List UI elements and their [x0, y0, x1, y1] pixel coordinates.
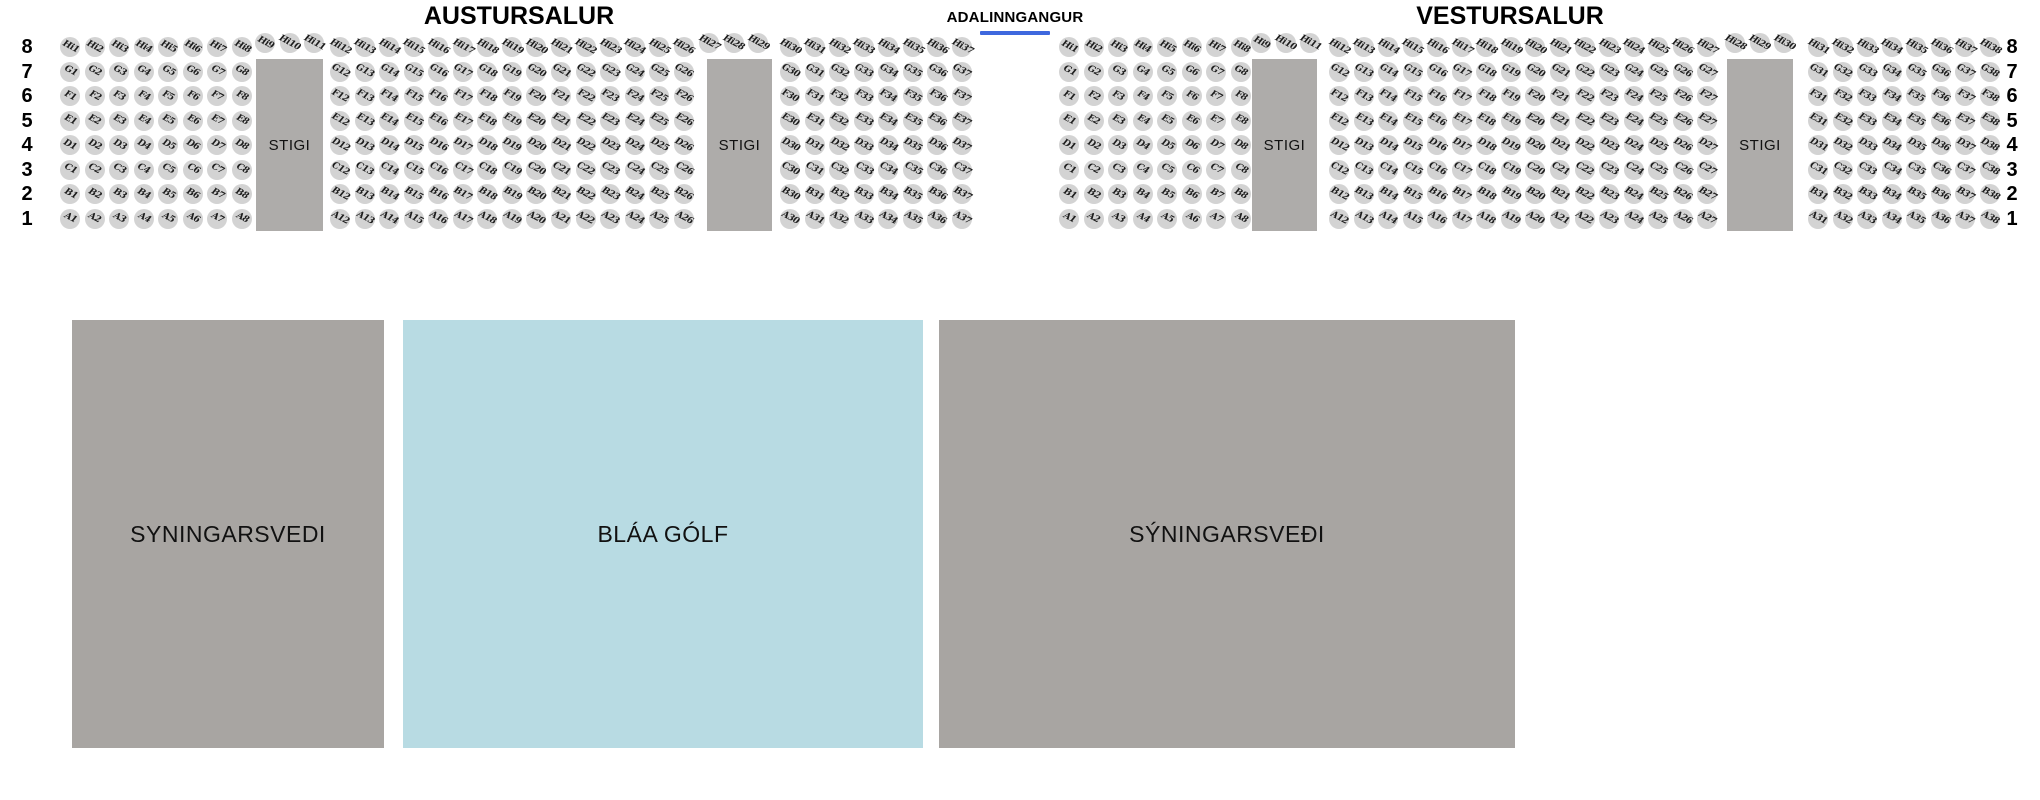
seat-C22[interactable]: C22: [1575, 160, 1595, 180]
seat-G23[interactable]: G23: [1599, 62, 1619, 82]
seat-C1[interactable]: C1: [1059, 160, 1079, 180]
seat-E2[interactable]: E2: [85, 111, 105, 131]
seat-B5[interactable]: B5: [158, 184, 178, 204]
seat-F1[interactable]: F1: [60, 86, 80, 106]
seat-G3[interactable]: G3: [109, 62, 129, 82]
seat-G14[interactable]: G14: [1378, 62, 1398, 82]
seat-F6[interactable]: F6: [1182, 86, 1202, 106]
seat-C16[interactable]: C16: [428, 160, 448, 180]
seat-A36[interactable]: A36: [1931, 209, 1951, 229]
seat-Hi20[interactable]: Hi20: [526, 37, 546, 57]
seat-G34[interactable]: G34: [1882, 62, 1902, 82]
seat-A34[interactable]: A34: [878, 209, 898, 229]
seat-Hi15[interactable]: Hi15: [404, 37, 424, 57]
seat-C30[interactable]: C30: [780, 160, 800, 180]
seat-Hi9[interactable]: Hi9: [1251, 33, 1271, 53]
seat-C31[interactable]: C31: [1808, 160, 1828, 180]
seat-F2[interactable]: F2: [1084, 86, 1104, 106]
seat-D26[interactable]: D26: [674, 135, 694, 155]
seat-C22[interactable]: C22: [576, 160, 596, 180]
seat-F13[interactable]: F13: [1354, 86, 1374, 106]
seat-C21[interactable]: C21: [1550, 160, 1570, 180]
seat-Hi3[interactable]: Hi3: [109, 37, 129, 57]
seat-D3[interactable]: D3: [1108, 135, 1128, 155]
seat-E32[interactable]: E32: [829, 111, 849, 131]
seat-B34[interactable]: B34: [878, 184, 898, 204]
seat-B32[interactable]: B32: [1833, 184, 1853, 204]
seat-G17[interactable]: G17: [453, 62, 473, 82]
seat-C20[interactable]: C20: [1525, 160, 1545, 180]
seat-C31[interactable]: C31: [805, 160, 825, 180]
seat-G33[interactable]: G33: [854, 62, 874, 82]
seat-A6[interactable]: A6: [1182, 209, 1202, 229]
seat-F21[interactable]: F21: [1550, 86, 1570, 106]
seat-B27[interactable]: B27: [1697, 184, 1717, 204]
seat-A31[interactable]: A31: [1808, 209, 1828, 229]
seat-D6[interactable]: D6: [1182, 135, 1202, 155]
seat-D8[interactable]: D8: [232, 135, 252, 155]
seat-F37[interactable]: F37: [1955, 86, 1975, 106]
seat-F24[interactable]: F24: [625, 86, 645, 106]
seat-D15[interactable]: D15: [404, 135, 424, 155]
seat-Hi8[interactable]: Hi8: [1231, 37, 1251, 57]
seat-A21[interactable]: A21: [1550, 209, 1570, 229]
seat-Hi21[interactable]: Hi21: [1550, 37, 1570, 57]
seat-G32[interactable]: G32: [829, 62, 849, 82]
seat-Hi37[interactable]: Hi37: [952, 37, 972, 57]
seat-Hi30[interactable]: Hi30: [1774, 33, 1794, 53]
seat-G31[interactable]: G31: [1808, 62, 1828, 82]
seat-E1[interactable]: E1: [1059, 111, 1079, 131]
seat-B17[interactable]: B17: [453, 184, 473, 204]
seat-E15[interactable]: E15: [1403, 111, 1423, 131]
seat-G20[interactable]: G20: [1525, 62, 1545, 82]
seat-A36[interactable]: A36: [927, 209, 947, 229]
seat-Hi27[interactable]: Hi27: [1697, 37, 1717, 57]
seat-A35[interactable]: A35: [1906, 209, 1926, 229]
seat-C24[interactable]: C24: [625, 160, 645, 180]
seat-C15[interactable]: C15: [404, 160, 424, 180]
seat-F14[interactable]: F14: [1378, 86, 1398, 106]
seat-D13[interactable]: D13: [355, 135, 375, 155]
seat-C17[interactable]: C17: [1452, 160, 1472, 180]
seat-D1[interactable]: D1: [60, 135, 80, 155]
seat-E13[interactable]: E13: [1354, 111, 1374, 131]
seat-D6[interactable]: D6: [183, 135, 203, 155]
seat-G6[interactable]: G6: [1182, 62, 1202, 82]
seat-D35[interactable]: D35: [1906, 135, 1926, 155]
seat-D19[interactable]: D19: [502, 135, 522, 155]
seat-F3[interactable]: F3: [109, 86, 129, 106]
seat-E5[interactable]: E5: [1157, 111, 1177, 131]
seat-Hi21[interactable]: Hi21: [551, 37, 571, 57]
seat-C27[interactable]: C27: [1697, 160, 1717, 180]
seat-F17[interactable]: F17: [453, 86, 473, 106]
seat-G38[interactable]: G38: [1980, 62, 2000, 82]
seat-E6[interactable]: E6: [1182, 111, 1202, 131]
seat-G36[interactable]: G36: [1931, 62, 1951, 82]
seat-F36[interactable]: F36: [1931, 86, 1951, 106]
seat-A32[interactable]: A32: [1833, 209, 1853, 229]
seat-Hi5[interactable]: Hi5: [1157, 37, 1177, 57]
seat-A17[interactable]: A17: [453, 209, 473, 229]
seat-C36[interactable]: C36: [927, 160, 947, 180]
seat-B36[interactable]: B36: [1931, 184, 1951, 204]
seat-D18[interactable]: D18: [477, 135, 497, 155]
seat-C36[interactable]: C36: [1931, 160, 1951, 180]
seat-G4[interactable]: G4: [1133, 62, 1153, 82]
seat-B38[interactable]: B38: [1980, 184, 2000, 204]
seat-F17[interactable]: F17: [1452, 86, 1472, 106]
seat-F16[interactable]: F16: [428, 86, 448, 106]
seat-F34[interactable]: F34: [878, 86, 898, 106]
seat-A5[interactable]: A5: [158, 209, 178, 229]
seat-D12[interactable]: D12: [330, 135, 350, 155]
seat-D24[interactable]: D24: [1624, 135, 1644, 155]
seat-A37[interactable]: A37: [952, 209, 972, 229]
seat-A14[interactable]: A14: [1378, 209, 1398, 229]
seat-D12[interactable]: D12: [1329, 135, 1349, 155]
seat-D31[interactable]: D31: [805, 135, 825, 155]
seat-G26[interactable]: G26: [674, 62, 694, 82]
seat-D27[interactable]: D27: [1697, 135, 1717, 155]
seat-F34[interactable]: F34: [1882, 86, 1902, 106]
seat-Hi7[interactable]: Hi7: [207, 37, 227, 57]
seat-E34[interactable]: E34: [878, 111, 898, 131]
seat-E22[interactable]: E22: [576, 111, 596, 131]
seat-B23[interactable]: B23: [1599, 184, 1619, 204]
seat-F14[interactable]: F14: [379, 86, 399, 106]
seat-C5[interactable]: C5: [158, 160, 178, 180]
seat-G16[interactable]: G16: [1427, 62, 1447, 82]
seat-D13[interactable]: D13: [1354, 135, 1374, 155]
seat-B25[interactable]: B25: [1648, 184, 1668, 204]
seat-C32[interactable]: C32: [1833, 160, 1853, 180]
seat-G2[interactable]: G2: [1084, 62, 1104, 82]
seat-Hi26[interactable]: Hi26: [1673, 37, 1693, 57]
seat-Hi35[interactable]: Hi35: [1906, 37, 1926, 57]
seat-Hi19[interactable]: Hi19: [502, 37, 522, 57]
seat-E23[interactable]: E23: [600, 111, 620, 131]
seat-Hi32[interactable]: Hi32: [829, 37, 849, 57]
seat-A25[interactable]: A25: [649, 209, 669, 229]
seat-G8[interactable]: G8: [1231, 62, 1251, 82]
seat-E25[interactable]: E25: [1648, 111, 1668, 131]
seat-E13[interactable]: E13: [355, 111, 375, 131]
area-blaa-golf[interactable]: BLÁA GÓLF: [403, 320, 923, 748]
seat-Hi22[interactable]: Hi22: [1575, 37, 1595, 57]
seat-Hi19[interactable]: Hi19: [1501, 37, 1521, 57]
seat-E21[interactable]: E21: [551, 111, 571, 131]
seat-G37[interactable]: G37: [1955, 62, 1975, 82]
seat-F30[interactable]: F30: [780, 86, 800, 106]
seat-D3[interactable]: D3: [109, 135, 129, 155]
seat-G18[interactable]: G18: [1476, 62, 1496, 82]
seat-A7[interactable]: A7: [207, 209, 227, 229]
seat-F18[interactable]: F18: [477, 86, 497, 106]
seat-B37[interactable]: B37: [952, 184, 972, 204]
seat-D32[interactable]: D32: [1833, 135, 1853, 155]
seat-A4[interactable]: A4: [134, 209, 154, 229]
seat-B36[interactable]: B36: [927, 184, 947, 204]
seat-E26[interactable]: E26: [1673, 111, 1693, 131]
seat-D32[interactable]: D32: [829, 135, 849, 155]
seat-E19[interactable]: E19: [502, 111, 522, 131]
seat-D1[interactable]: D1: [1059, 135, 1079, 155]
seat-A13[interactable]: A13: [355, 209, 375, 229]
seat-D17[interactable]: D17: [453, 135, 473, 155]
seat-D25[interactable]: D25: [1648, 135, 1668, 155]
seat-Hi17[interactable]: Hi17: [1452, 37, 1472, 57]
seat-B2[interactable]: B2: [1084, 184, 1104, 204]
seat-C16[interactable]: C16: [1427, 160, 1447, 180]
seat-D4[interactable]: D4: [1133, 135, 1153, 155]
seat-A8[interactable]: A8: [232, 209, 252, 229]
seat-C13[interactable]: C13: [355, 160, 375, 180]
seat-Hi17[interactable]: Hi17: [453, 37, 473, 57]
seat-E24[interactable]: E24: [1624, 111, 1644, 131]
seat-Hi34[interactable]: Hi34: [878, 37, 898, 57]
seat-Hi11[interactable]: Hi11: [304, 33, 324, 53]
seat-G23[interactable]: G23: [600, 62, 620, 82]
seat-D33[interactable]: D33: [1857, 135, 1877, 155]
seat-E30[interactable]: E30: [780, 111, 800, 131]
seat-D22[interactable]: D22: [576, 135, 596, 155]
seat-B1[interactable]: B1: [60, 184, 80, 204]
seat-B19[interactable]: B19: [1501, 184, 1521, 204]
seat-G24[interactable]: G24: [1624, 62, 1644, 82]
seat-C4[interactable]: C4: [1133, 160, 1153, 180]
seat-C12[interactable]: C12: [1329, 160, 1349, 180]
seat-B33[interactable]: B33: [1857, 184, 1877, 204]
seat-E34[interactable]: E34: [1882, 111, 1902, 131]
seat-E12[interactable]: E12: [1329, 111, 1349, 131]
seat-G27[interactable]: G27: [1697, 62, 1717, 82]
seat-A31[interactable]: A31: [805, 209, 825, 229]
seat-F7[interactable]: F7: [207, 86, 227, 106]
seat-E4[interactable]: E4: [1133, 111, 1153, 131]
seat-E35[interactable]: E35: [903, 111, 923, 131]
seat-Hi16[interactable]: Hi16: [1427, 37, 1447, 57]
seat-G2[interactable]: G2: [85, 62, 105, 82]
seat-C35[interactable]: C35: [1906, 160, 1926, 180]
seat-Hi36[interactable]: Hi36: [927, 37, 947, 57]
seat-G22[interactable]: G22: [1575, 62, 1595, 82]
seat-A30[interactable]: A30: [780, 209, 800, 229]
seat-A6[interactable]: A6: [183, 209, 203, 229]
seat-E26[interactable]: E26: [674, 111, 694, 131]
seat-G21[interactable]: G21: [1550, 62, 1570, 82]
seat-A34[interactable]: A34: [1882, 209, 1902, 229]
seat-B35[interactable]: B35: [903, 184, 923, 204]
seat-B12[interactable]: B12: [330, 184, 350, 204]
seat-Hi10[interactable]: Hi10: [280, 33, 300, 53]
seat-F37[interactable]: F37: [952, 86, 972, 106]
seat-F2[interactable]: F2: [85, 86, 105, 106]
seat-G8[interactable]: G8: [232, 62, 252, 82]
seat-A26[interactable]: A26: [1673, 209, 1693, 229]
seat-B3[interactable]: B3: [109, 184, 129, 204]
seat-Hi13[interactable]: Hi13: [1354, 37, 1374, 57]
seat-Hi29[interactable]: Hi29: [1750, 33, 1770, 53]
seat-C35[interactable]: C35: [903, 160, 923, 180]
seat-D5[interactable]: D5: [158, 135, 178, 155]
seat-Hi33[interactable]: Hi33: [1857, 37, 1877, 57]
seat-Hi31[interactable]: Hi31: [805, 37, 825, 57]
seat-Hi23[interactable]: Hi23: [600, 37, 620, 57]
seat-E12[interactable]: E12: [330, 111, 350, 131]
seat-C2[interactable]: C2: [1084, 160, 1104, 180]
seat-Hi37[interactable]: Hi37: [1955, 37, 1975, 57]
seat-F15[interactable]: F15: [404, 86, 424, 106]
seat-D16[interactable]: D16: [428, 135, 448, 155]
seat-F31[interactable]: F31: [1808, 86, 1828, 106]
seat-Hi22[interactable]: Hi22: [576, 37, 596, 57]
seat-C3[interactable]: C3: [109, 160, 129, 180]
seat-Hi12[interactable]: Hi12: [330, 37, 350, 57]
seat-F36[interactable]: F36: [927, 86, 947, 106]
seat-D34[interactable]: D34: [1882, 135, 1902, 155]
seat-A26[interactable]: A26: [674, 209, 694, 229]
seat-C20[interactable]: C20: [526, 160, 546, 180]
seat-A16[interactable]: A16: [428, 209, 448, 229]
seat-E35[interactable]: E35: [1906, 111, 1926, 131]
seat-E1[interactable]: E1: [60, 111, 80, 131]
seat-B31[interactable]: B31: [805, 184, 825, 204]
seat-D23[interactable]: D23: [600, 135, 620, 155]
seat-A23[interactable]: A23: [600, 209, 620, 229]
seat-G36[interactable]: G36: [927, 62, 947, 82]
seat-C23[interactable]: C23: [1599, 160, 1619, 180]
seat-B8[interactable]: B8: [1231, 184, 1251, 204]
seat-G1[interactable]: G1: [1059, 62, 1079, 82]
seat-G16[interactable]: G16: [428, 62, 448, 82]
seat-F13[interactable]: F13: [355, 86, 375, 106]
seat-C5[interactable]: C5: [1157, 160, 1177, 180]
seat-D24[interactable]: D24: [625, 135, 645, 155]
seat-E38[interactable]: E38: [1980, 111, 2000, 131]
seat-A1[interactable]: A1: [1059, 209, 1079, 229]
seat-Hi12[interactable]: Hi12: [1329, 37, 1349, 57]
seat-B19[interactable]: B19: [502, 184, 522, 204]
seat-C26[interactable]: C26: [674, 160, 694, 180]
seat-B22[interactable]: B22: [1575, 184, 1595, 204]
seat-Hi4[interactable]: Hi4: [1133, 37, 1153, 57]
seat-D36[interactable]: D36: [1931, 135, 1951, 155]
seat-A27[interactable]: A27: [1697, 209, 1717, 229]
seat-Hi2[interactable]: Hi2: [1084, 37, 1104, 57]
seat-F35[interactable]: F35: [1906, 86, 1926, 106]
seat-C25[interactable]: C25: [649, 160, 669, 180]
seat-Hi10[interactable]: Hi10: [1276, 33, 1296, 53]
seat-G37[interactable]: G37: [952, 62, 972, 82]
seat-G5[interactable]: G5: [1157, 62, 1177, 82]
seat-B15[interactable]: B15: [404, 184, 424, 204]
seat-Hi26[interactable]: Hi26: [674, 37, 694, 57]
seat-Hi31[interactable]: Hi31: [1808, 37, 1828, 57]
seat-E33[interactable]: E33: [1857, 111, 1877, 131]
seat-Hi1[interactable]: Hi1: [1059, 37, 1079, 57]
seat-A2[interactable]: A2: [85, 209, 105, 229]
seat-A24[interactable]: A24: [1624, 209, 1644, 229]
seat-F25[interactable]: F25: [649, 86, 669, 106]
seat-Hi11[interactable]: Hi11: [1300, 33, 1320, 53]
seat-D37[interactable]: D37: [1955, 135, 1975, 155]
seat-B4[interactable]: B4: [1133, 184, 1153, 204]
seat-D2[interactable]: D2: [1084, 135, 1104, 155]
seat-F26[interactable]: F26: [674, 86, 694, 106]
seat-G31[interactable]: G31: [805, 62, 825, 82]
seat-C14[interactable]: C14: [1378, 160, 1398, 180]
seat-E31[interactable]: E31: [1808, 111, 1828, 131]
seat-E18[interactable]: E18: [1476, 111, 1496, 131]
seat-B23[interactable]: B23: [600, 184, 620, 204]
seat-C37[interactable]: C37: [1955, 160, 1975, 180]
seat-Hi32[interactable]: Hi32: [1833, 37, 1853, 57]
seat-B16[interactable]: B16: [428, 184, 448, 204]
seat-Hi35[interactable]: Hi35: [903, 37, 923, 57]
seat-Hi36[interactable]: Hi36: [1931, 37, 1951, 57]
seat-Hi25[interactable]: Hi25: [1648, 37, 1668, 57]
seat-F6[interactable]: F6: [183, 86, 203, 106]
seat-B26[interactable]: B26: [674, 184, 694, 204]
seat-D21[interactable]: D21: [1550, 135, 1570, 155]
seat-D7[interactable]: D7: [1206, 135, 1226, 155]
seat-E21[interactable]: E21: [1550, 111, 1570, 131]
seat-A25[interactable]: A25: [1648, 209, 1668, 229]
seat-B14[interactable]: B14: [379, 184, 399, 204]
seat-E8[interactable]: E8: [232, 111, 252, 131]
seat-G6[interactable]: G6: [183, 62, 203, 82]
seat-G22[interactable]: G22: [576, 62, 596, 82]
seat-C6[interactable]: C6: [183, 160, 203, 180]
seat-C19[interactable]: C19: [502, 160, 522, 180]
seat-E23[interactable]: E23: [1599, 111, 1619, 131]
seat-A23[interactable]: A23: [1599, 209, 1619, 229]
seat-A32[interactable]: A32: [829, 209, 849, 229]
seat-F5[interactable]: F5: [1157, 86, 1177, 106]
seat-F27[interactable]: F27: [1697, 86, 1717, 106]
seat-Hi7[interactable]: Hi7: [1206, 37, 1226, 57]
seat-B7[interactable]: B7: [1206, 184, 1226, 204]
seat-A12[interactable]: A12: [330, 209, 350, 229]
seat-A14[interactable]: A14: [379, 209, 399, 229]
seat-F18[interactable]: F18: [1476, 86, 1496, 106]
seat-Hi4[interactable]: Hi4: [134, 37, 154, 57]
seat-G13[interactable]: G13: [355, 62, 375, 82]
seat-B8[interactable]: B8: [232, 184, 252, 204]
seat-B31[interactable]: B31: [1808, 184, 1828, 204]
seat-G26[interactable]: G26: [1673, 62, 1693, 82]
seat-Hi1[interactable]: Hi1: [60, 37, 80, 57]
seat-Hi24[interactable]: Hi24: [625, 37, 645, 57]
seat-A12[interactable]: A12: [1329, 209, 1349, 229]
seat-B30[interactable]: B30: [780, 184, 800, 204]
seat-E20[interactable]: E20: [1525, 111, 1545, 131]
seat-A4[interactable]: A4: [1133, 209, 1153, 229]
seat-B20[interactable]: B20: [1525, 184, 1545, 204]
seat-Hi27[interactable]: Hi27: [699, 33, 719, 53]
seat-D38[interactable]: D38: [1980, 135, 2000, 155]
seat-F26[interactable]: F26: [1673, 86, 1693, 106]
seat-F31[interactable]: F31: [805, 86, 825, 106]
seat-D33[interactable]: D33: [854, 135, 874, 155]
seat-E25[interactable]: E25: [649, 111, 669, 131]
seat-F33[interactable]: F33: [854, 86, 874, 106]
seat-A37[interactable]: A37: [1955, 209, 1975, 229]
seat-C7[interactable]: C7: [207, 160, 227, 180]
seat-E17[interactable]: E17: [1452, 111, 1472, 131]
